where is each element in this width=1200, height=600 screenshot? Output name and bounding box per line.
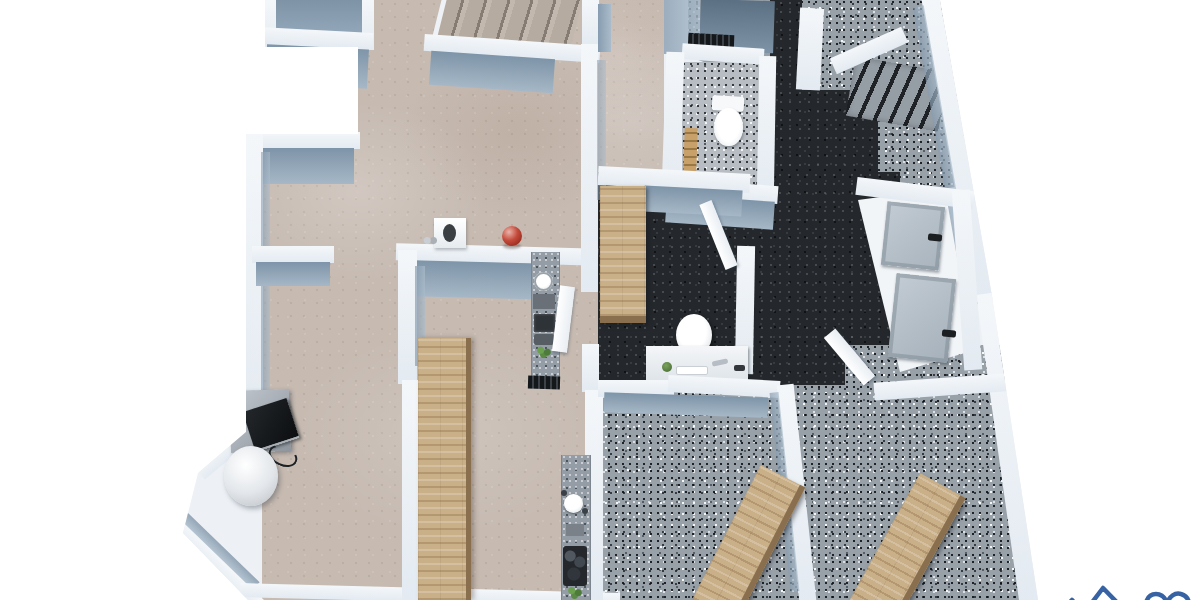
vanity-plant-dot [662,362,672,372]
spine-wall-main [581,44,598,292]
shelf-pots [534,334,554,345]
wc-ladder-shelf [683,128,698,172]
spine-wall-top [582,0,599,46]
brand-logo [1046,572,1196,600]
shelf-plant-upper [534,345,553,358]
vanity-soap [734,365,745,371]
wood-wardrobe [600,186,646,323]
bottom-left-diagonal-face [176,509,259,590]
spine-wall-top-face [598,4,611,52]
heart-outline-icon [1146,594,1189,600]
stairhall-west-cap [796,7,824,90]
floor-plan-render [0,0,1200,600]
notch-wall-cap [246,132,360,149]
lower-left-partial-face [256,262,330,286]
left-outer-wall-face [261,152,270,430]
gray-door-panel-2 [888,273,956,363]
floor-plan-shell [0,0,1200,600]
shelf-washer-disc [534,272,553,291]
shelf-chair-dot-2 [582,508,588,514]
chrome-bits [423,236,437,245]
vanity-tray [676,366,708,375]
door-panel-1-handle [928,233,943,241]
bathroom-north-face [643,185,742,216]
top-left-room-outer-face [265,43,369,88]
wood-counter-long [418,338,471,600]
counter-side-wall [402,380,418,600]
door-panel-2-handle [942,329,957,337]
shelf-box-light [566,524,584,536]
water-tank-cylinder [224,446,278,506]
shelf-box-dark [534,314,555,332]
shelf-plant-lower [565,585,584,599]
wc-toilet-bowl [714,108,743,146]
shelf-box-gray [533,294,555,309]
house-outline-icon [1050,588,1138,600]
dark-grate [528,375,560,389]
spine-wall-lower [582,344,599,392]
lower-left-partial-cap [252,246,334,263]
floor-storage-rooms [600,385,1038,600]
shelf-pot-cluster [563,546,587,586]
shelf-chair-dot-1 [561,490,567,496]
shelf-table-disc [564,494,583,513]
red-ball [502,226,522,246]
appliance-slot [443,224,456,242]
wc-east-cap [757,56,777,202]
